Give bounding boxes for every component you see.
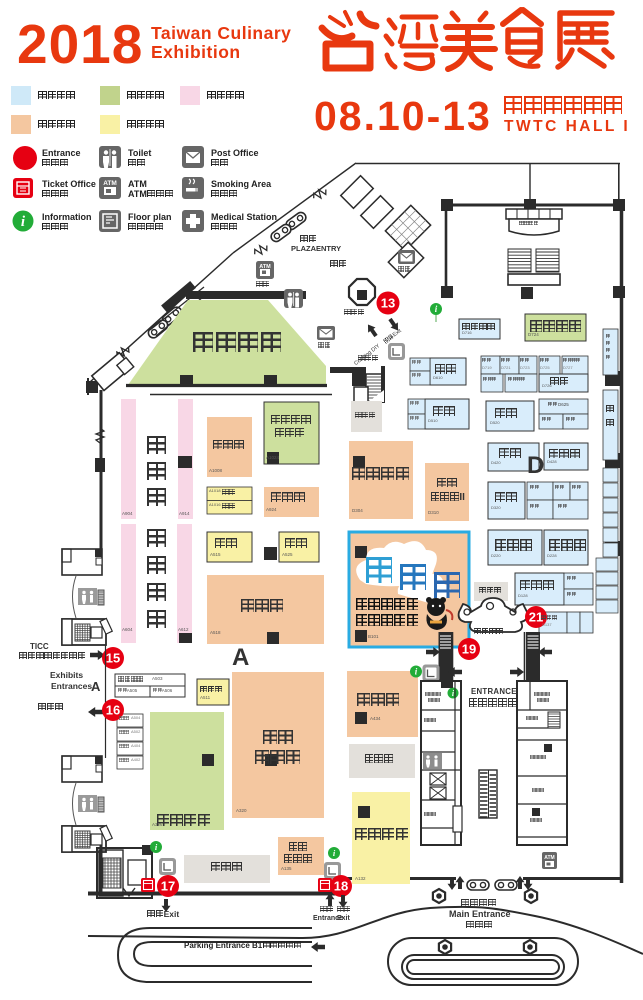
svg-text:ATM: ATM	[103, 180, 117, 187]
svg-text:ATM: ATM	[544, 855, 554, 861]
svg-text:19: 19	[462, 642, 476, 657]
svg-text:18: 18	[334, 879, 348, 894]
svg-text:15: 15	[106, 651, 120, 666]
svg-text:17: 17	[161, 879, 175, 894]
svg-text:13: 13	[381, 296, 395, 311]
